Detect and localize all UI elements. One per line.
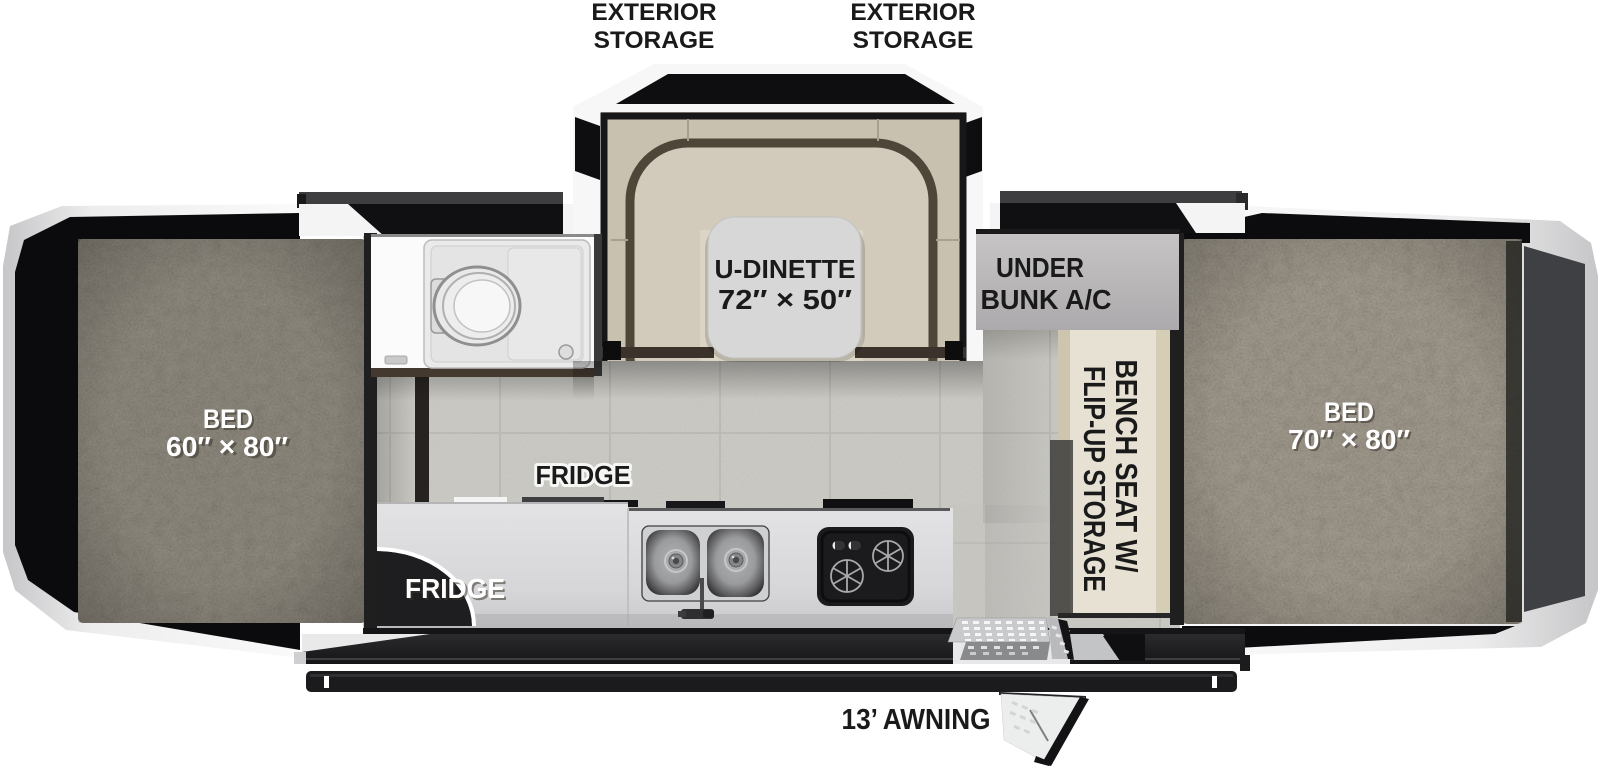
svg-text:EXTERIOR: EXTERIOR: [591, 0, 717, 26]
svg-text:60″ × 80″: 60″ × 80″: [166, 431, 288, 462]
svg-text:STORAGE: STORAGE: [594, 27, 715, 54]
svg-text:BENCH SEAT W/: BENCH SEAT W/: [1109, 360, 1144, 573]
svg-text:FRIDGE: FRIDGE: [405, 573, 505, 604]
svg-text:UNDER: UNDER: [996, 252, 1084, 283]
svg-text:FRIDGE: FRIDGE: [536, 460, 631, 490]
svg-text:13’ AWNING: 13’ AWNING: [842, 704, 991, 736]
svg-text:BED: BED: [203, 404, 253, 434]
svg-text:FLIP-UP STORAGE: FLIP-UP STORAGE: [1077, 366, 1112, 592]
svg-text:70″ × 80″: 70″ × 80″: [1288, 424, 1410, 455]
svg-text:BED: BED: [1324, 397, 1374, 427]
svg-text:STORAGE: STORAGE: [853, 27, 974, 54]
svg-text:U-DINETTE: U-DINETTE: [715, 254, 856, 284]
svg-text:72″ × 50″: 72″ × 50″: [718, 284, 852, 315]
svg-text:EXTERIOR: EXTERIOR: [850, 0, 976, 26]
svg-text:BUNK A/C: BUNK A/C: [981, 284, 1112, 315]
